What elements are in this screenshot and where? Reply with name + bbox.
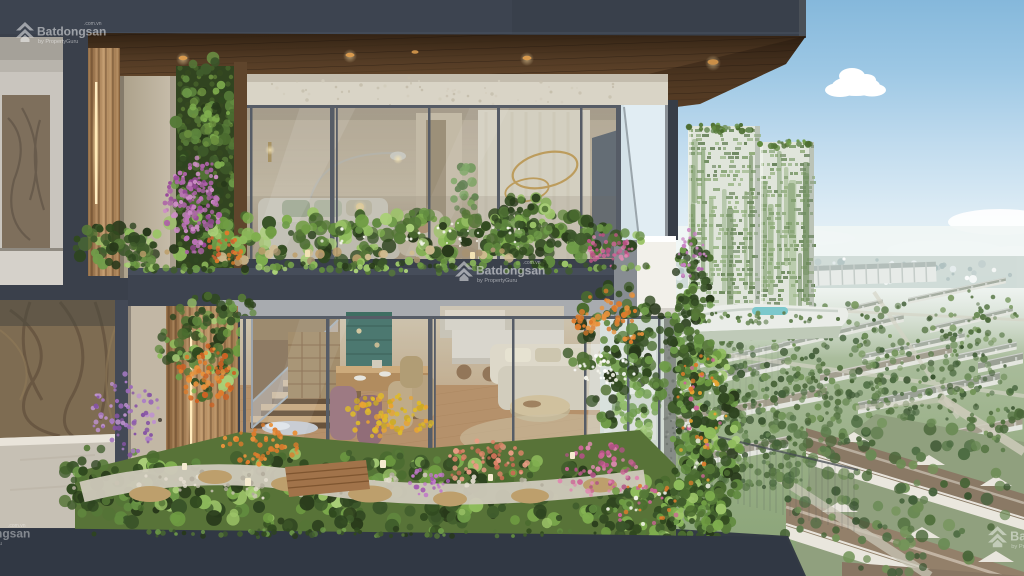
svg-text:Batdongsan: Batdongsan xyxy=(1010,529,1024,543)
svg-text:by PropertyGuru: by PropertyGuru xyxy=(477,278,517,284)
svg-text:by PropertyGuru: by PropertyGuru xyxy=(1011,544,1024,550)
svg-text:by PropertyGuru: by PropertyGuru xyxy=(0,541,2,547)
svg-text:.com.vn: .com.vn xyxy=(84,21,102,27)
svg-text:.com.vn: .com.vn xyxy=(523,260,541,266)
svg-text:.com.vn: .com.vn xyxy=(8,523,26,529)
svg-text:by PropertyGuru: by PropertyGuru xyxy=(38,39,78,45)
